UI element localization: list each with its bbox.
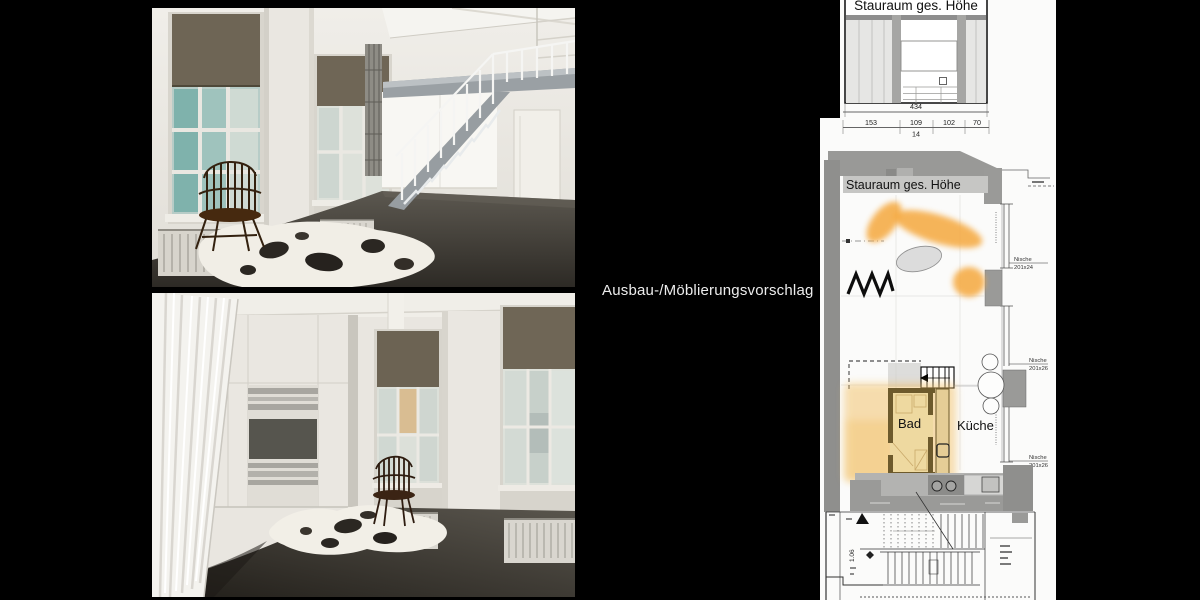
tv-panel xyxy=(249,419,317,459)
presentation-slide: Ausbau-/Möblierungsvorschlag xyxy=(0,0,1200,600)
photo-loft-wardrobe xyxy=(152,293,575,597)
elevation-drawing: Stauraum ges. Höhe xyxy=(845,0,987,103)
slide-annotation: Ausbau-/Möblierungsvorschlag xyxy=(602,282,814,299)
storage-band-label: Stauraum ges. Höhe xyxy=(846,178,961,192)
photo-loft-mezzanine xyxy=(152,8,575,287)
dim-total: 434 xyxy=(910,102,922,111)
window-left xyxy=(372,329,444,513)
dim-seg-3: 102 xyxy=(943,118,955,127)
wall-pier xyxy=(985,270,1002,306)
window-right xyxy=(498,305,575,511)
floor-plan: Stauraum ges. Höhe 434 153 109 102 70 14 xyxy=(820,0,1057,600)
bath-highlight-2 xyxy=(846,420,894,480)
bad-label: Bad xyxy=(898,416,921,431)
photo-loft-mezzanine-art xyxy=(152,8,575,287)
outer-pier xyxy=(1003,370,1026,407)
dim-seg-4: 70 xyxy=(973,118,981,127)
photo-loft-wardrobe-art xyxy=(152,293,575,597)
floor-plan-drawing: Stauraum ges. Höhe 434 153 109 102 70 14 xyxy=(820,0,1057,600)
dim-sub: 14 xyxy=(912,130,920,139)
bad-room: Bad xyxy=(888,388,949,477)
svg-text:Nische: Nische xyxy=(1029,358,1047,364)
svg-text:Nische: Nische xyxy=(1014,257,1032,263)
svg-text:201x26: 201x26 xyxy=(1029,366,1048,372)
dim-seg-1: 153 xyxy=(865,118,877,127)
door xyxy=(514,110,560,204)
radiator-right xyxy=(504,519,575,563)
stairwell-label: 1.06 xyxy=(849,549,856,562)
wall-pillar xyxy=(264,8,314,252)
dim-seg-2: 109 xyxy=(910,118,922,127)
svg-text:Nische: Nische xyxy=(1029,455,1047,461)
kueche-label: Küche xyxy=(957,418,994,433)
svg-text:201x24: 201x24 xyxy=(1014,265,1034,271)
metal-shaft xyxy=(365,44,382,176)
elevation-title: Stauraum ges. Höhe xyxy=(854,0,978,13)
